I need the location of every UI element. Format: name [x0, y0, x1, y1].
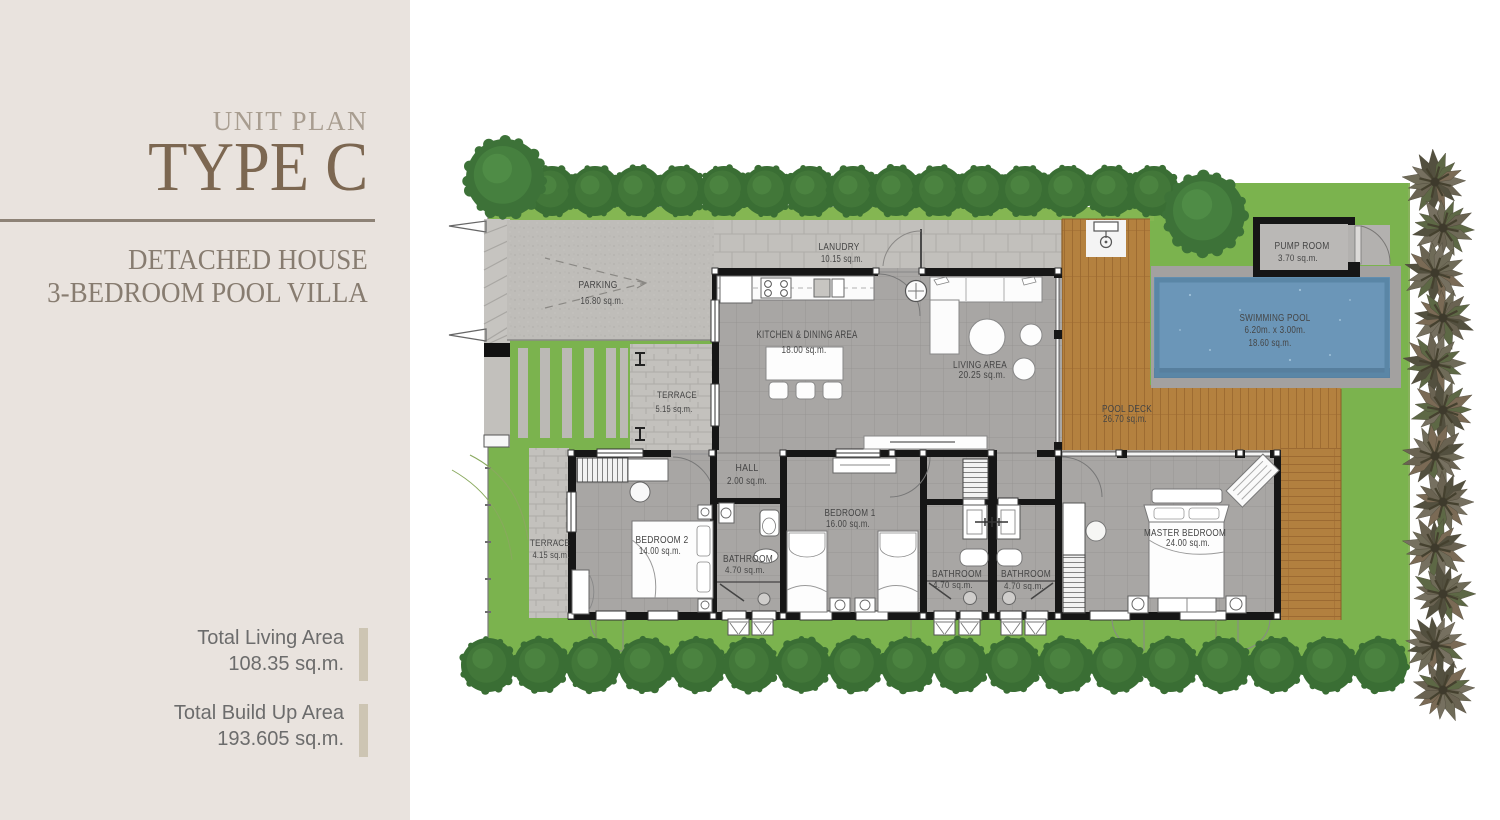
svg-text:LANUDRY: LANUDRY: [819, 242, 860, 253]
svg-text:BATHROOM: BATHROOM: [932, 569, 982, 580]
svg-text:4.70 sq.m.: 4.70 sq.m.: [933, 580, 973, 591]
svg-text:PARKING: PARKING: [579, 279, 618, 291]
svg-text:KITCHEN & DINING AREA: KITCHEN & DINING AREA: [757, 329, 858, 341]
svg-text:26.70 sq.m.: 26.70 sq.m.: [1103, 414, 1147, 425]
svg-text:HALL: HALL: [736, 462, 759, 474]
svg-text:TERRACE: TERRACE: [657, 390, 697, 401]
svg-text:14.00 sq.m.: 14.00 sq.m.: [639, 546, 681, 557]
svg-text:4.70 sq.m.: 4.70 sq.m.: [1004, 581, 1044, 592]
svg-text:5.15 sq.m.: 5.15 sq.m.: [656, 404, 693, 415]
svg-text:3.70 sq.m.: 3.70 sq.m.: [1278, 253, 1318, 264]
svg-text:16.00 sq.m.: 16.00 sq.m.: [826, 519, 870, 530]
svg-text:PUMP ROOM: PUMP ROOM: [1275, 241, 1330, 252]
svg-text:BATHROOM: BATHROOM: [723, 554, 773, 565]
svg-text:24.00 sq.m.: 24.00 sq.m.: [1166, 538, 1210, 549]
svg-text:6.20m. x 3.00m.: 6.20m. x 3.00m.: [1245, 325, 1306, 336]
svg-text:20.25 sq.m.: 20.25 sq.m.: [959, 370, 1006, 381]
svg-text:4.70 sq.m.: 4.70 sq.m.: [725, 565, 765, 576]
svg-text:BATHROOM: BATHROOM: [1001, 569, 1051, 580]
svg-text:18.60 sq.m.: 18.60 sq.m.: [1249, 338, 1292, 349]
svg-text:TERRACE: TERRACE: [530, 538, 570, 549]
svg-text:BEDROOM 1: BEDROOM 1: [825, 507, 876, 519]
svg-text:4.15 sq.m.: 4.15 sq.m.: [533, 550, 570, 561]
svg-text:BEDROOM 2: BEDROOM 2: [636, 534, 689, 546]
svg-text:SWIMMING POOL: SWIMMING POOL: [1240, 312, 1311, 324]
svg-text:10.15 sq.m.: 10.15 sq.m.: [821, 254, 863, 265]
svg-text:18.00 sq.m.: 18.00 sq.m.: [782, 344, 827, 356]
svg-text:2.00 sq.m.: 2.00 sq.m.: [727, 476, 767, 487]
svg-text:16.80 sq.m.: 16.80 sq.m.: [581, 296, 624, 307]
